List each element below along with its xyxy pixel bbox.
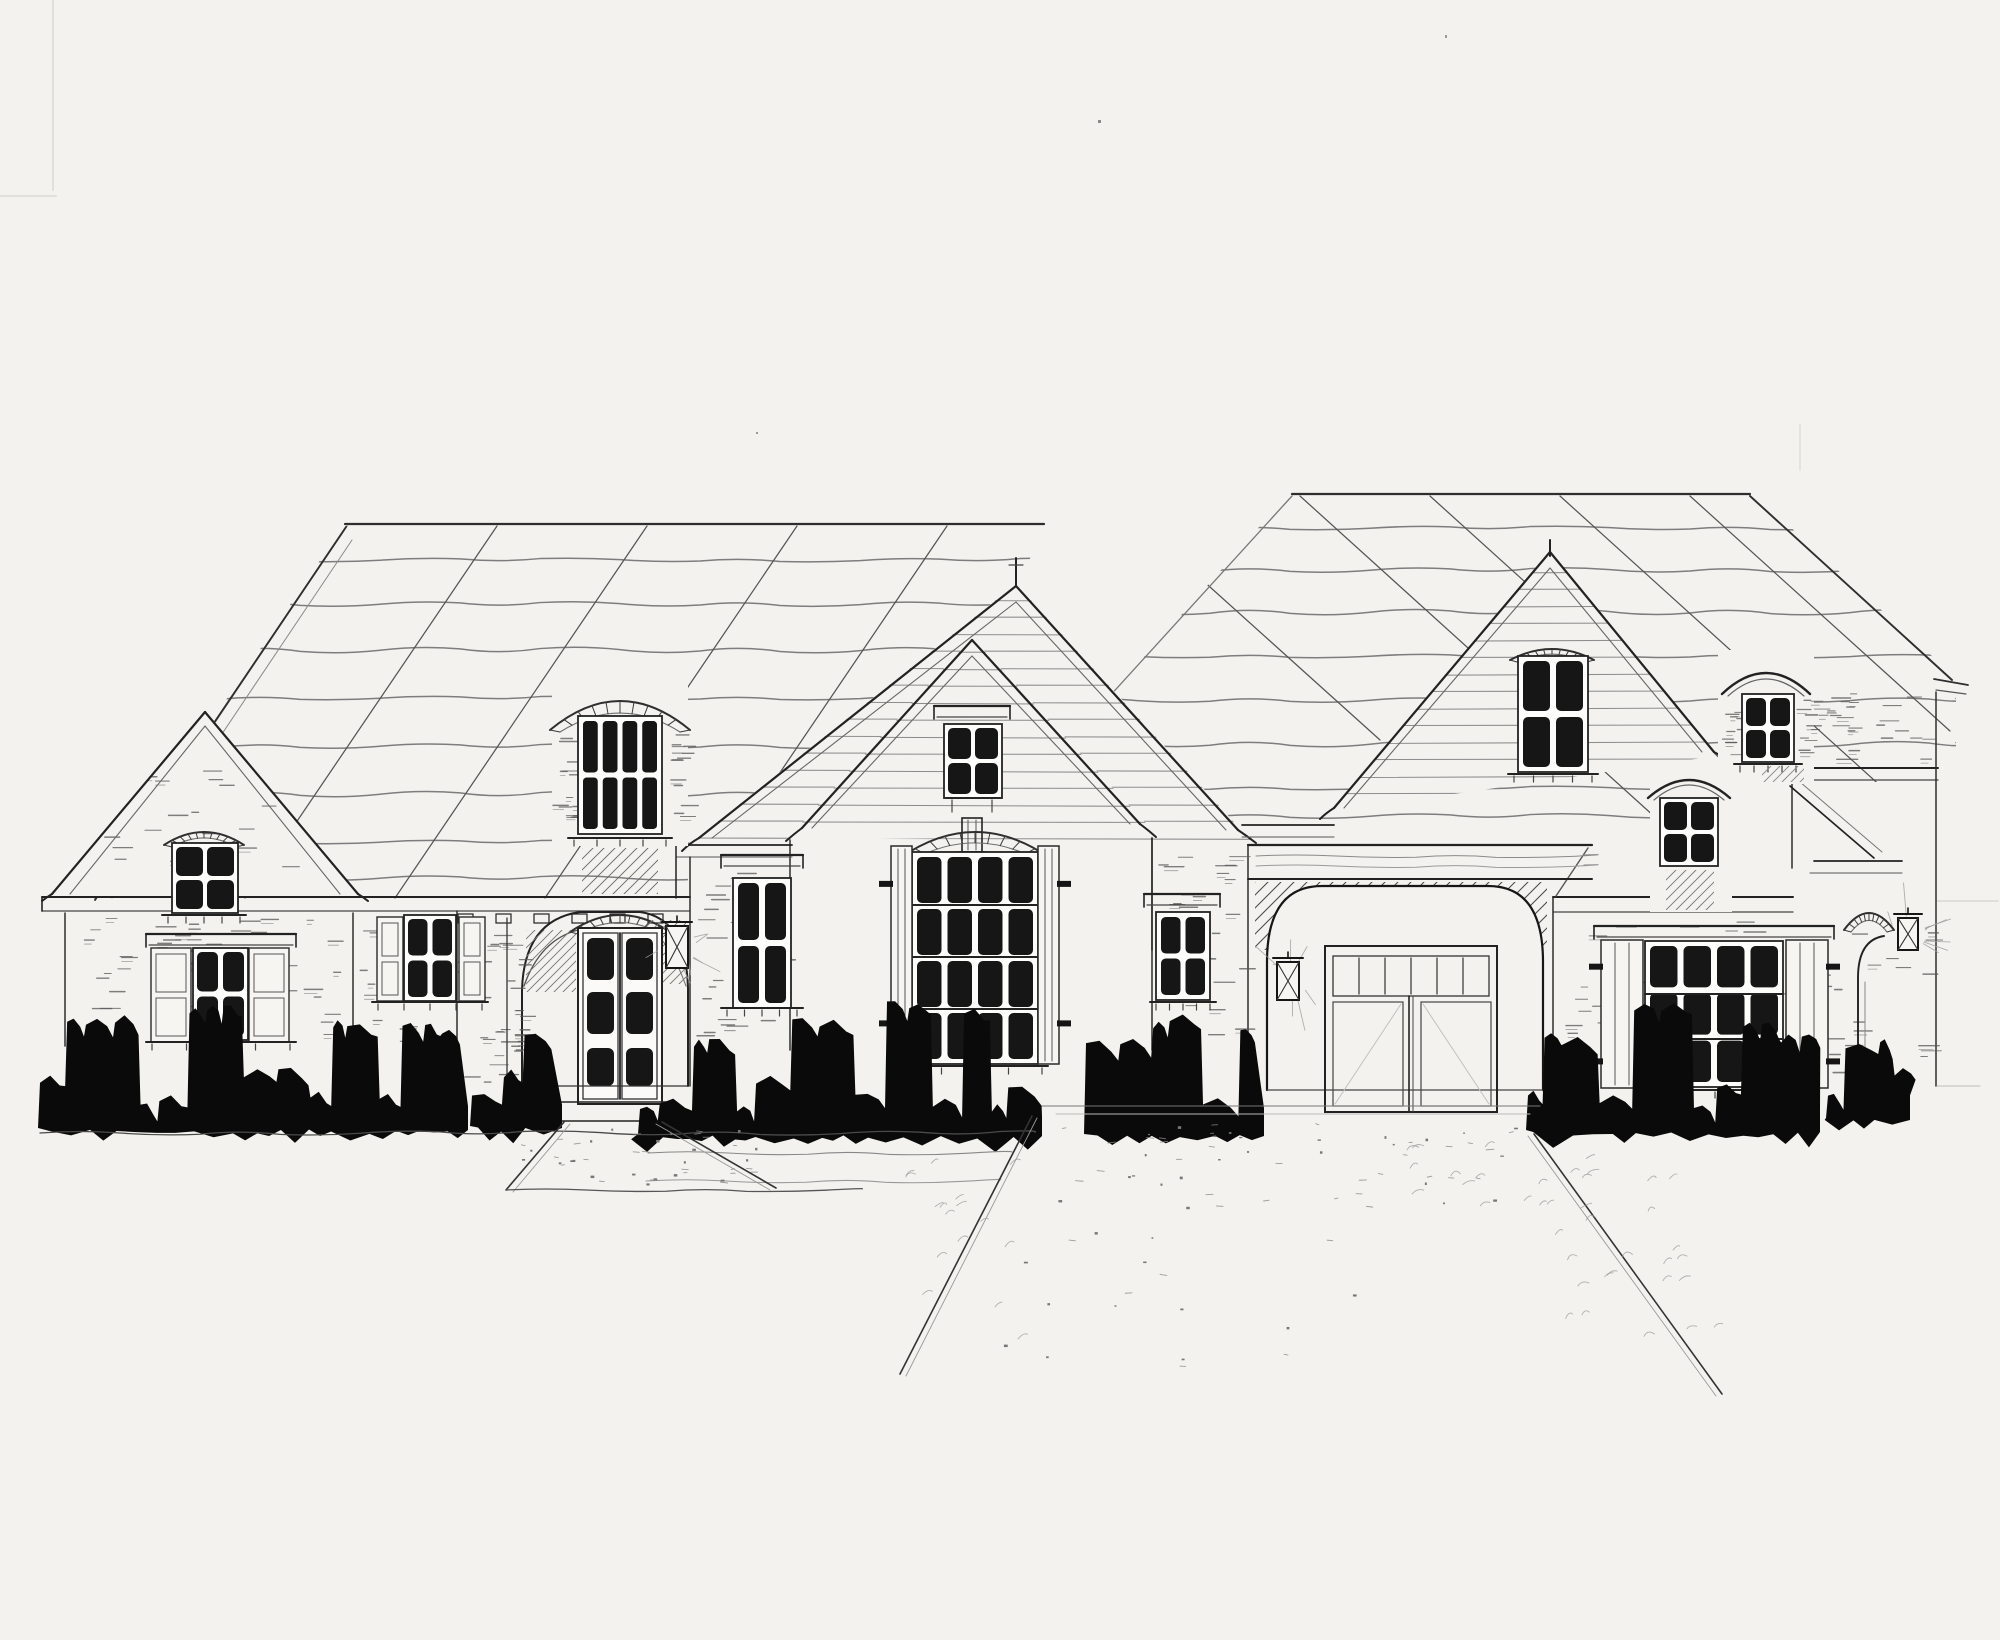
- elevation-sketch-canvas: [0, 0, 2000, 1640]
- sketch-page: [0, 0, 2000, 1640]
- elevation-drawing: [0, 0, 2000, 1640]
